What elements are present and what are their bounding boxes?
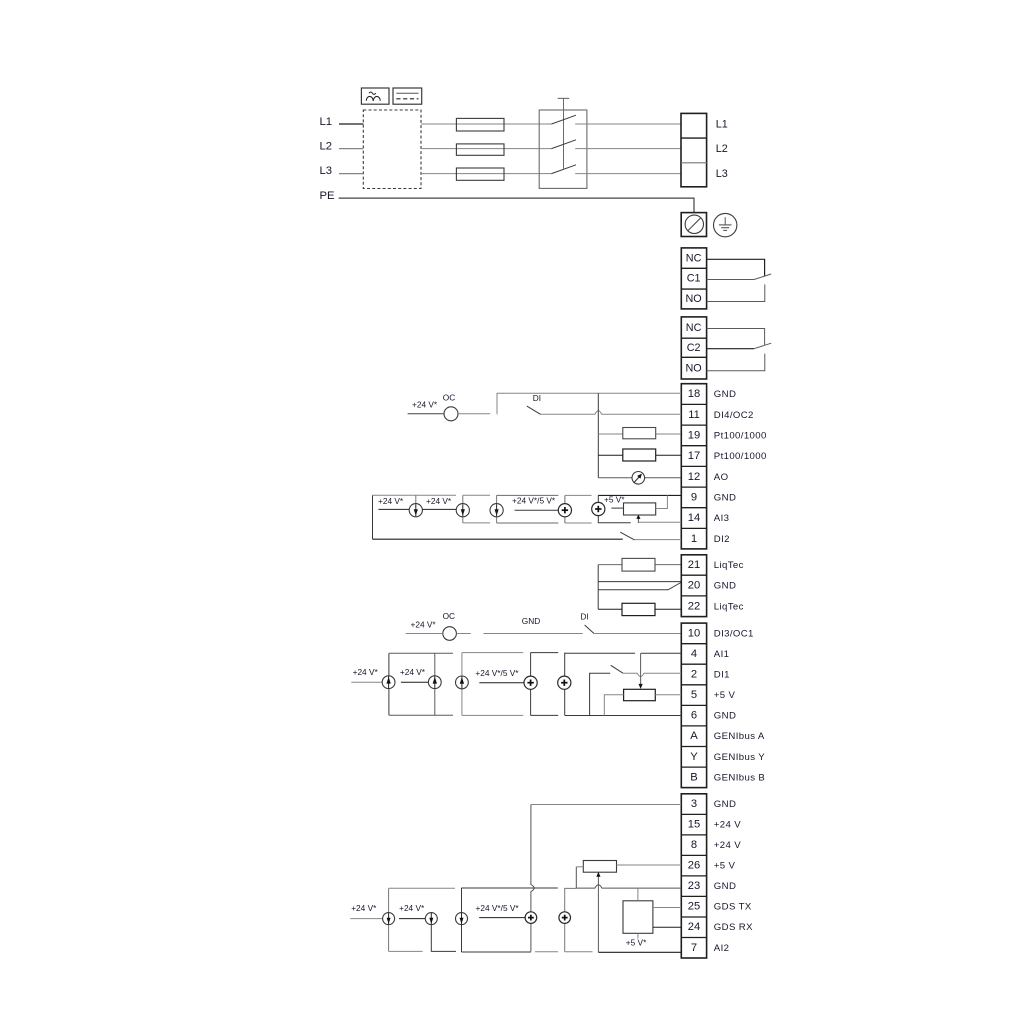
svg-text:+5 V: +5 V [714,861,736,872]
svg-text:+24 V: +24 V [714,820,741,831]
svg-text:L3: L3 [716,168,728,180]
svg-text:DI: DI [533,393,541,403]
svg-text:+24 V*/5 V*: +24 V*/5 V* [512,495,556,505]
svg-text:GDS TX: GDS TX [714,902,752,913]
svg-text:9: 9 [691,491,697,503]
svg-text:AI2: AI2 [714,943,730,954]
svg-text:GND: GND [714,389,736,400]
svg-text:+5 V*: +5 V* [604,495,625,505]
svg-text:AI1: AI1 [714,649,730,660]
svg-text:GENIbus Y: GENIbus Y [714,752,765,763]
svg-text:7: 7 [691,942,697,954]
svg-text:NO: NO [685,293,701,305]
svg-text:LiqTec: LiqTec [714,560,744,571]
svg-text:C2: C2 [687,342,701,354]
svg-text:+5 V*: +5 V* [626,938,647,948]
svg-text:20: 20 [688,580,700,592]
svg-text:L2: L2 [320,141,333,153]
svg-text:L1: L1 [716,118,728,130]
svg-text:17: 17 [688,450,700,462]
svg-text:DI4/OC2: DI4/OC2 [714,410,754,421]
svg-text:DI3/OC1: DI3/OC1 [714,628,754,639]
svg-text:GDS RX: GDS RX [714,922,753,933]
svg-text:+24 V*: +24 V* [411,620,437,630]
svg-text:GND: GND [714,881,736,892]
svg-text:+24 V: +24 V [714,840,741,851]
svg-text:+24 V*: +24 V* [400,667,426,677]
svg-text:+24 V*: +24 V* [353,667,379,677]
svg-text:+24 V*: +24 V* [412,399,438,409]
svg-text:+24 V*: +24 V* [378,496,404,506]
svg-text:GND: GND [714,711,736,722]
svg-text:10: 10 [688,627,700,639]
svg-text:Y: Y [690,751,698,763]
svg-text:21: 21 [688,559,700,571]
svg-text:25: 25 [688,901,700,913]
svg-text:1: 1 [691,533,697,545]
svg-text:4: 4 [691,648,697,660]
svg-text:5: 5 [691,689,697,701]
svg-text:14: 14 [688,512,700,524]
svg-text:19: 19 [688,429,700,441]
svg-text:GND: GND [714,799,736,810]
svg-text:AO: AO [714,472,729,483]
svg-text:24: 24 [688,921,700,933]
svg-text:26: 26 [688,860,700,872]
svg-text:LiqTec: LiqTec [714,601,744,612]
svg-text:22: 22 [688,600,700,612]
svg-text:GND: GND [522,616,540,626]
svg-text:3: 3 [691,798,697,810]
svg-text:GENIbus B: GENIbus B [714,772,765,783]
svg-text:+24 V*/5 V*: +24 V*/5 V* [475,668,519,678]
svg-text:Pt100/1000: Pt100/1000 [714,430,767,441]
svg-text:L2: L2 [716,143,728,155]
svg-text:11: 11 [688,409,700,421]
svg-text:+24 V*: +24 V* [351,903,377,913]
svg-text:L3: L3 [320,165,333,177]
svg-text:NC: NC [686,252,702,264]
svg-text:A: A [690,730,698,742]
svg-text:NC: NC [686,322,702,334]
svg-text:DI2: DI2 [714,534,730,545]
svg-text:+24 V*: +24 V* [426,496,452,506]
svg-text:2: 2 [691,669,697,681]
svg-text:15: 15 [688,819,700,831]
svg-text:12: 12 [688,471,700,483]
svg-text:C1: C1 [687,273,701,285]
svg-text:Pt100/1000: Pt100/1000 [714,451,767,462]
svg-text:GND: GND [714,492,736,503]
svg-text:DI1: DI1 [714,670,730,681]
svg-text:B: B [690,771,697,783]
svg-text:6: 6 [691,710,697,722]
svg-text:23: 23 [688,880,700,892]
svg-text:18: 18 [688,388,700,400]
svg-text:AI3: AI3 [714,513,730,524]
svg-text:GENIbus A: GENIbus A [714,731,765,742]
svg-text:GND: GND [714,581,736,592]
svg-text:OC: OC [443,611,455,621]
svg-text:NO: NO [685,362,701,374]
svg-text:L1: L1 [320,116,333,128]
svg-text:+24 V*: +24 V* [399,903,425,913]
svg-text:OC: OC [443,393,455,403]
svg-text:PE: PE [320,190,336,202]
svg-text:DI: DI [580,612,588,622]
svg-text:+24 V*/5 V*: +24 V*/5 V* [476,903,520,913]
svg-text:8: 8 [691,839,697,851]
svg-text:+5 V: +5 V [714,690,736,701]
